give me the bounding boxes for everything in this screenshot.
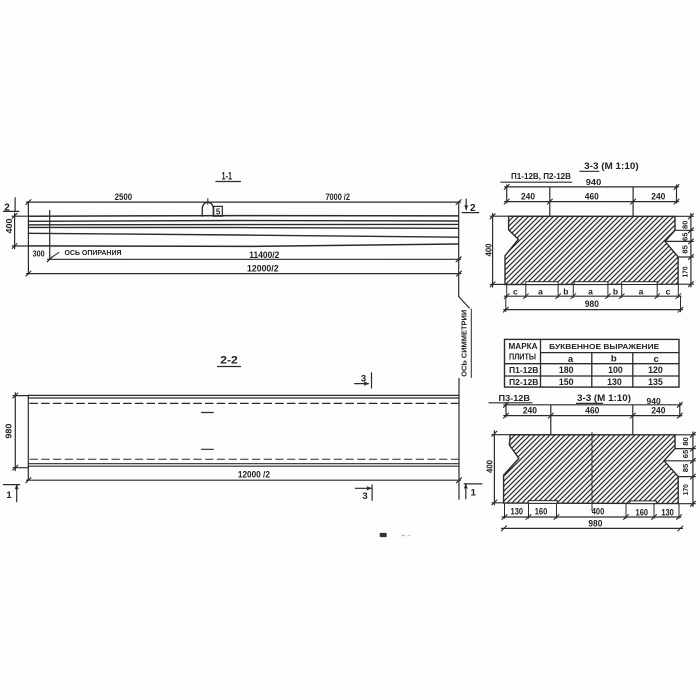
svg-text:П1-12В, П2-12В: П1-12В, П2-12В (511, 172, 571, 181)
svg-text:2500: 2500 (115, 192, 133, 203)
svg-text:b: b (613, 286, 618, 296)
svg-text:1-1: 1-1 (222, 171, 233, 183)
svg-text:980: 980 (4, 423, 14, 438)
svg-text:ПЛИТЫ: ПЛИТЫ (509, 352, 536, 361)
svg-text:300: 300 (33, 249, 45, 259)
svg-text:3: 3 (361, 373, 366, 384)
svg-text:b: b (563, 286, 568, 296)
svg-text:a: a (538, 286, 543, 296)
svg-text:240: 240 (651, 192, 665, 202)
svg-text:2-2: 2-2 (220, 354, 238, 366)
svg-text:c: c (654, 354, 659, 365)
svg-text:b: b (611, 353, 617, 364)
svg-text:400: 400 (486, 459, 495, 473)
svg-text:7000 /2: 7000 /2 (325, 192, 350, 203)
svg-text:150: 150 (559, 377, 574, 387)
svg-text:ОСЬ СИММЕТРИИ: ОСЬ СИММЕТРИИ (460, 310, 469, 377)
svg-text:1: 1 (471, 488, 477, 499)
svg-text:85: 85 (681, 464, 690, 473)
svg-text:c: c (666, 286, 671, 296)
svg-text:2: 2 (470, 203, 476, 214)
svg-text:980: 980 (588, 518, 602, 528)
svg-text:980: 980 (585, 299, 599, 309)
svg-text:170: 170 (681, 267, 690, 278)
svg-text:a: a (588, 286, 593, 296)
svg-text:180: 180 (559, 365, 574, 375)
svg-text:П1-12В: П1-12В (509, 366, 539, 375)
svg-text:240: 240 (523, 406, 537, 416)
svg-text:ОСЬ ОПИРАНИЯ: ОСЬ ОПИРАНИЯ (65, 248, 122, 257)
svg-text:240: 240 (651, 406, 665, 416)
svg-text:85: 85 (681, 245, 690, 254)
svg-text:160: 160 (636, 507, 649, 517)
svg-text:170: 170 (681, 484, 690, 495)
svg-text:160: 160 (535, 506, 548, 516)
svg-text:130: 130 (607, 377, 622, 387)
svg-text:П2-12В: П2-12В (509, 378, 539, 387)
svg-text:135: 135 (648, 377, 663, 387)
svg-text:3-3 (М 1:10): 3-3 (М 1:10) (577, 393, 631, 403)
svg-text:1: 1 (6, 490, 12, 501)
svg-text:2: 2 (4, 203, 10, 214)
svg-text:a: a (568, 354, 574, 365)
svg-text:240: 240 (521, 192, 535, 202)
svg-text:460: 460 (585, 192, 599, 202)
svg-text:130: 130 (511, 506, 524, 516)
svg-text:12000/2: 12000/2 (247, 263, 279, 274)
svg-text:400: 400 (5, 218, 14, 234)
svg-text:80: 80 (681, 437, 690, 446)
svg-text:c: c (513, 286, 518, 296)
svg-text:400: 400 (592, 506, 605, 516)
svg-text:3-3 (М 1:10): 3-3 (М 1:10) (584, 161, 639, 171)
svg-text:МАРКА: МАРКА (509, 342, 538, 351)
svg-text:65: 65 (681, 233, 690, 242)
svg-text:120: 120 (648, 365, 663, 375)
svg-text:11400/2: 11400/2 (249, 250, 279, 261)
svg-text:12000 /2: 12000 /2 (238, 469, 270, 480)
svg-text:130: 130 (661, 507, 674, 517)
svg-text:П3-12В: П3-12В (499, 394, 531, 403)
svg-text:100: 100 (608, 365, 623, 375)
svg-text:940: 940 (586, 178, 602, 187)
svg-text:БУКВЕННОЕ ВЫРАЖЕНИЕ: БУКВЕННОЕ ВЫРАЖЕНИЕ (549, 342, 659, 351)
svg-text:a: a (639, 286, 644, 296)
svg-text:3: 3 (362, 491, 367, 502)
svg-text:65: 65 (681, 450, 690, 459)
svg-text:400: 400 (484, 243, 493, 257)
svg-text:460: 460 (585, 406, 599, 416)
svg-text:80: 80 (681, 221, 690, 230)
